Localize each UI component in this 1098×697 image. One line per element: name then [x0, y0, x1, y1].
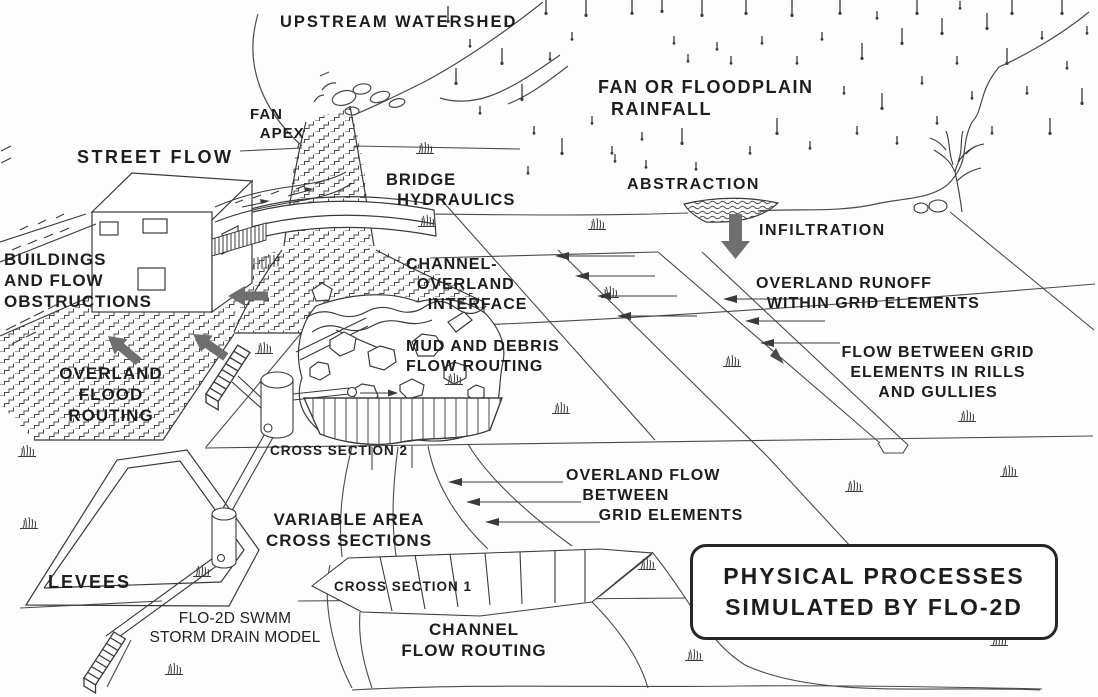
rock — [929, 200, 947, 212]
label-channel-overland: CHANNEL- OVERLAND INTERFACE — [406, 255, 527, 314]
label-levees: LEVEES — [48, 571, 131, 593]
label-mud-debris: MUD AND DEBRIS FLOW ROUTING — [406, 337, 560, 377]
label-infiltration: INFILTRATION — [759, 221, 886, 241]
title-line-1: PHYSICAL PROCESSES — [723, 561, 1024, 592]
label-upstream-watershed: UPSTREAM WATERSHED — [280, 12, 517, 32]
label-overland-flow-between: OVERLAND FLOW BETWEEN GRID ELEMENTS — [566, 466, 743, 525]
label-cross-section-1: CROSS SECTION 1 — [334, 579, 472, 596]
label-bridge-hydraulics: BRIDGE HYDRAULICS — [386, 170, 515, 211]
label-rainfall: FAN OR FLOODPLAIN RAINFALL — [598, 76, 814, 121]
label-street-flow: STREET FLOW — [77, 146, 234, 168]
label-overland-flood: OVERLAND FLOOD ROUTING — [46, 363, 176, 426]
label-flow-rills: FLOW BETWEEN GRID ELEMENTS IN RILLS AND … — [812, 343, 1064, 402]
label-channel-flow: CHANNEL FLOW ROUTING — [380, 619, 568, 661]
label-variable-area: VARIABLE AREA CROSS SECTIONS — [246, 509, 452, 551]
label-swmm-storm-drain: FLO-2D SWMM STORM DRAIN MODEL — [135, 609, 335, 647]
title-box: PHYSICAL PROCESSES SIMULATED BY FLO-2D — [690, 544, 1058, 640]
flo2d-diagram: UPSTREAM WATERSHED FAN APEX STREET FLOW … — [0, 0, 1098, 697]
rock — [914, 203, 928, 213]
label-overland-runoff: OVERLAND RUNOFF WITHIN GRID ELEMENTS — [756, 274, 980, 314]
tree — [914, 131, 984, 213]
window — [100, 222, 118, 235]
label-abstraction: ABSTRACTION — [627, 175, 760, 195]
cross-section-2-shape — [304, 398, 502, 444]
label-cross-section-2: CROSS SECTION 2 — [270, 443, 408, 460]
label-buildings: BUILDINGS AND FLOW OBSTRUCTIONS — [4, 249, 152, 312]
title-line-2: SIMULATED BY FLO-2D — [725, 592, 1023, 623]
window — [143, 219, 167, 233]
label-fan-apex: FAN APEX — [250, 106, 305, 143]
